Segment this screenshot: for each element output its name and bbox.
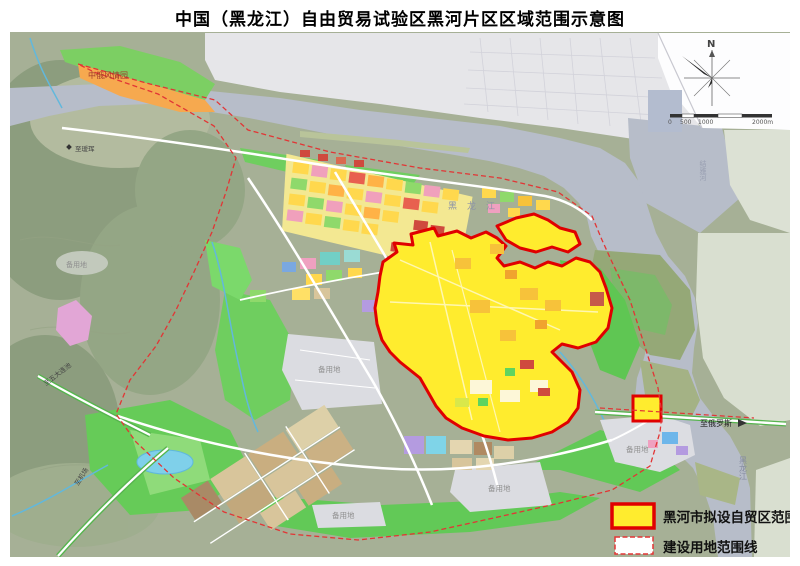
legend-swatch-construction [615,537,653,554]
map-content: N 0 500 1000 2000m 中俄风情园 黑龙江 结雅河 黑龙江 至俄罗… [0,32,798,564]
se-land [754,458,790,557]
ftz-bridge-square [633,396,661,421]
reserve-label-southwest: 备用地 [332,510,355,520]
theme-park-label: 中俄风情园 [88,70,128,80]
compass-north-label: N [707,39,715,50]
legend-swatch-ftz [612,504,654,528]
scale-tick-0: 0 [668,119,672,126]
reserve-label-west: 备用地 [66,260,87,269]
river-label-zeya: 结雅河 [699,159,707,181]
scale-tick-1000: 1000 [698,119,713,126]
scale-tick-2000: 2000m [752,119,773,126]
corner-water-patch [648,90,682,132]
map-page: 中国（黑龙江）自由贸易试验区黑河片区区域范围示意图 [0,0,800,566]
reserve-label-south: 备用地 [488,483,511,493]
river-label-top: 黑龙江 [448,200,505,211]
reserve-label-mid: 备用地 [318,364,341,374]
map-canvas: N 0 500 1000 2000m 中俄风情园 黑龙江 结雅河 黑龙江 至俄罗… [0,0,800,566]
svg-text:至瑷珲: 至瑷珲 [75,145,95,153]
legend-label-ftz: 黑河市拟设自贸区范围 [663,509,798,525]
scale-tick-500: 500 [680,119,692,126]
river-label-bottom: 黑龙江 [739,456,748,481]
reserve-label-east: 备用地 [626,444,649,454]
svg-text:至俄罗斯: 至俄罗斯 [700,418,732,428]
legend-label-construction: 建设用地范围线 [662,539,758,555]
